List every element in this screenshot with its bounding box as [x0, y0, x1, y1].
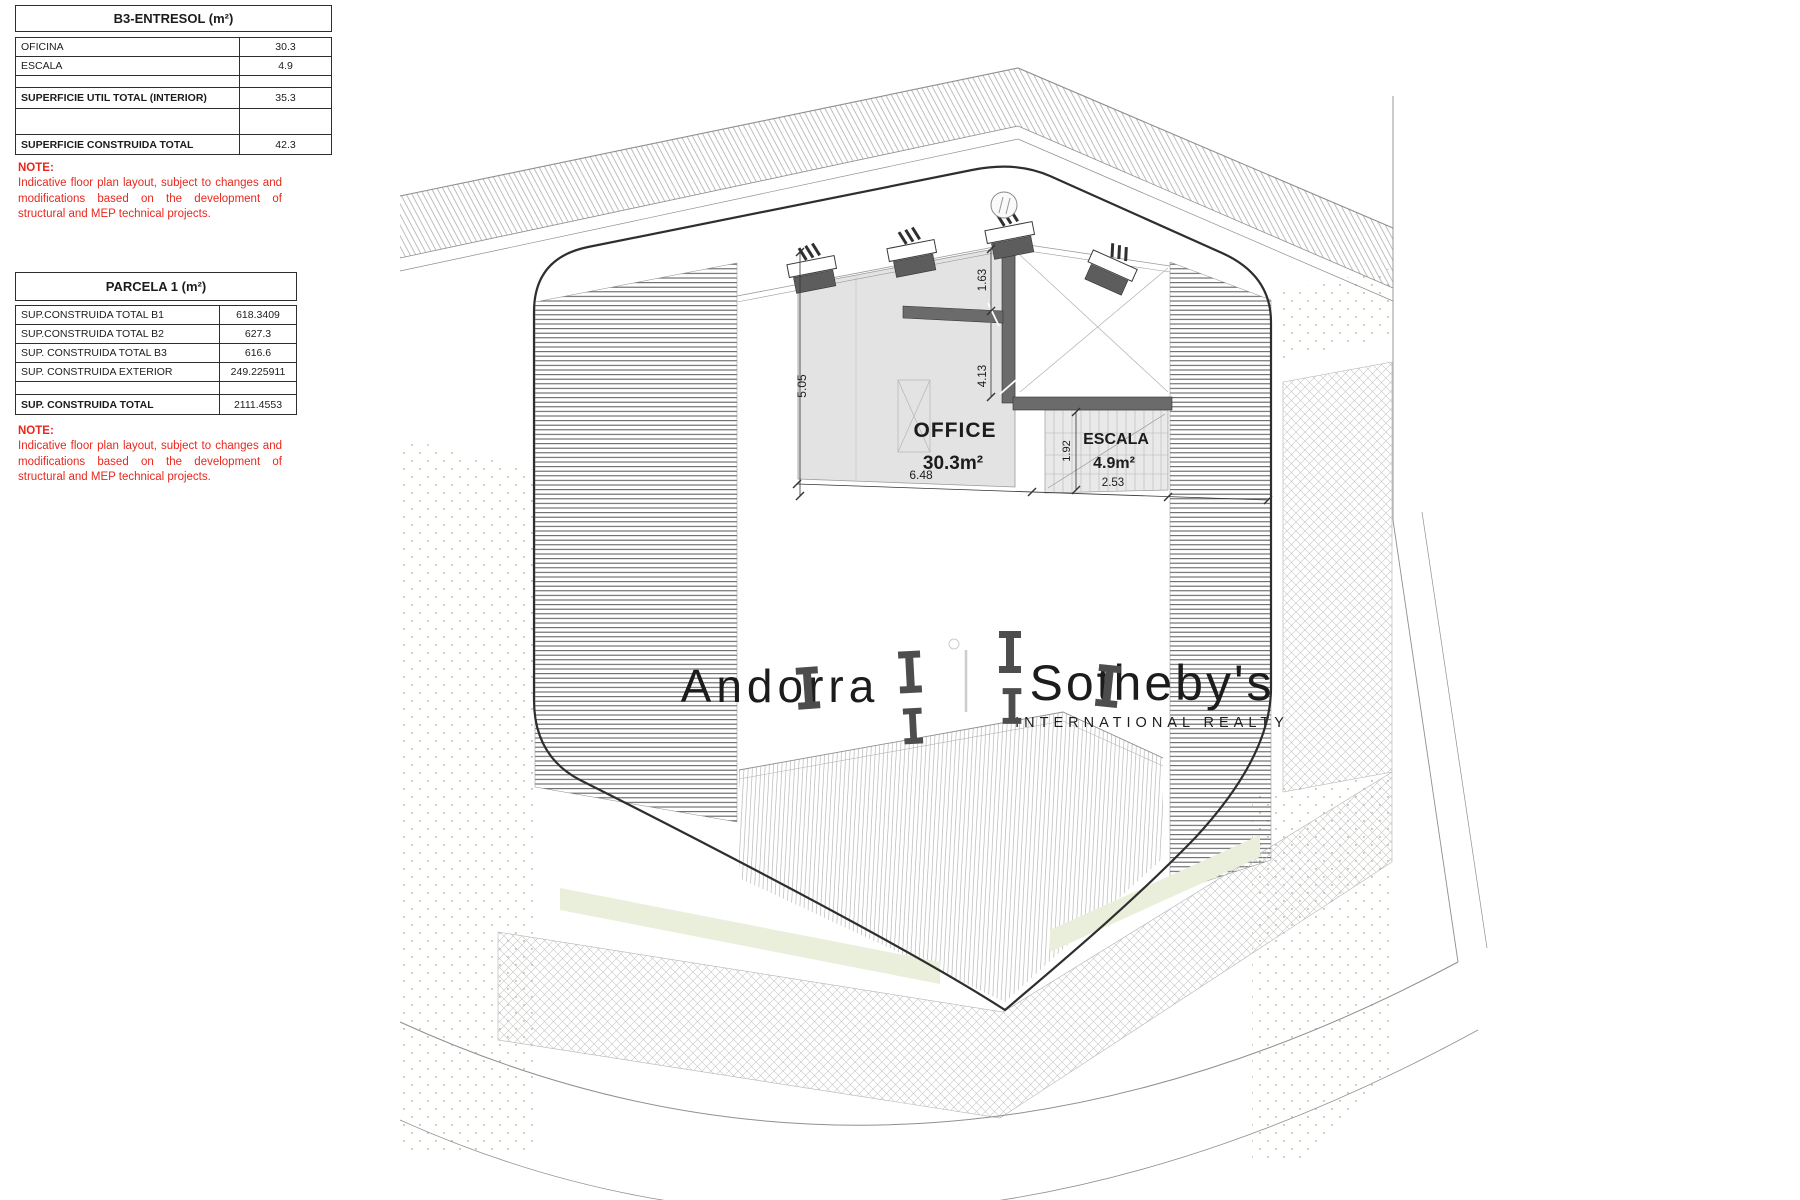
- table-row: SUP. CONSTRUIDA EXTERIOR 249.225911: [16, 363, 296, 382]
- note-label: NOTE:: [18, 424, 282, 439]
- dim-wall-upper: 1.63: [977, 269, 989, 291]
- table-row: SUPERFICIE UTIL TOTAL (INTERIOR) 35.3: [16, 88, 331, 109]
- note-text: Indicative floor plan layout, subject to…: [18, 439, 282, 485]
- table-row-spacer: [16, 109, 331, 135]
- table-b3-entresol: B3-ENTRESOL (m²) OFICINA 30.3 ESCALA 4.9…: [15, 5, 332, 155]
- note-block-2: NOTE: Indicative floor plan layout, subj…: [18, 424, 282, 486]
- area-tables-panel: B3-ENTRESOL (m²) OFICINA 30.3 ESCALA 4.9…: [0, 0, 400, 1200]
- left-hatch-band: [535, 263, 737, 822]
- right-hatch-band: [1170, 262, 1271, 893]
- luminaire-icon: [991, 192, 1017, 218]
- table-row: SUP. CONSTRUIDA TOTAL B3 616.6: [16, 344, 296, 363]
- table-row-spacer: [16, 382, 296, 395]
- watermark-part1: Andorra: [681, 660, 880, 712]
- table-row: SUP.CONSTRUIDA TOTAL B1 618.3409: [16, 306, 296, 325]
- table-row: SUP. CONSTRUIDA TOTAL 2111.4553: [16, 395, 296, 415]
- table-b3-title: B3-ENTRESOL (m²): [15, 5, 332, 32]
- room-label-escala: ESCALA: [1083, 431, 1149, 448]
- table-row: SUP.CONSTRUIDA TOTAL B2 627.3: [16, 325, 296, 344]
- watermark-part2: Sotheby's: [1029, 655, 1274, 711]
- note-block-1: NOTE: Indicative floor plan layout, subj…: [18, 161, 282, 223]
- dim-office-width: 6.48: [909, 468, 933, 482]
- table-row: SUPERFICIE CONSTRUIDA TOTAL 42.3: [16, 135, 331, 155]
- table-row-spacer: [16, 76, 331, 88]
- table-row: ESCALA 4.9: [16, 57, 331, 76]
- dim-wall-lower: 4.13: [977, 365, 989, 387]
- room-label-office: OFFICE: [914, 419, 997, 442]
- table-parcela1-title: PARCELA 1 (m²): [15, 272, 297, 301]
- watermark-subtitle: INTERNATIONAL REALTY: [1015, 715, 1289, 731]
- room-area-escala: 4.9m²: [1093, 455, 1135, 472]
- table-parcela1: PARCELA 1 (m²) SUP.CONSTRUIDA TOTAL B1 6…: [15, 272, 297, 415]
- note-text: Indicative floor plan layout, subject to…: [18, 176, 282, 222]
- table-row: OFICINA 30.3: [16, 38, 331, 57]
- dim-office-height: 5.05: [795, 374, 809, 398]
- dim-escala-height: 1.92: [1061, 440, 1073, 461]
- dim-escala-width: 2.53: [1102, 477, 1124, 489]
- note-label: NOTE:: [18, 161, 282, 176]
- floor-plan-sheet: Andorra Sotheby's INTERNATIONAL REALTY: [0, 0, 1800, 1200]
